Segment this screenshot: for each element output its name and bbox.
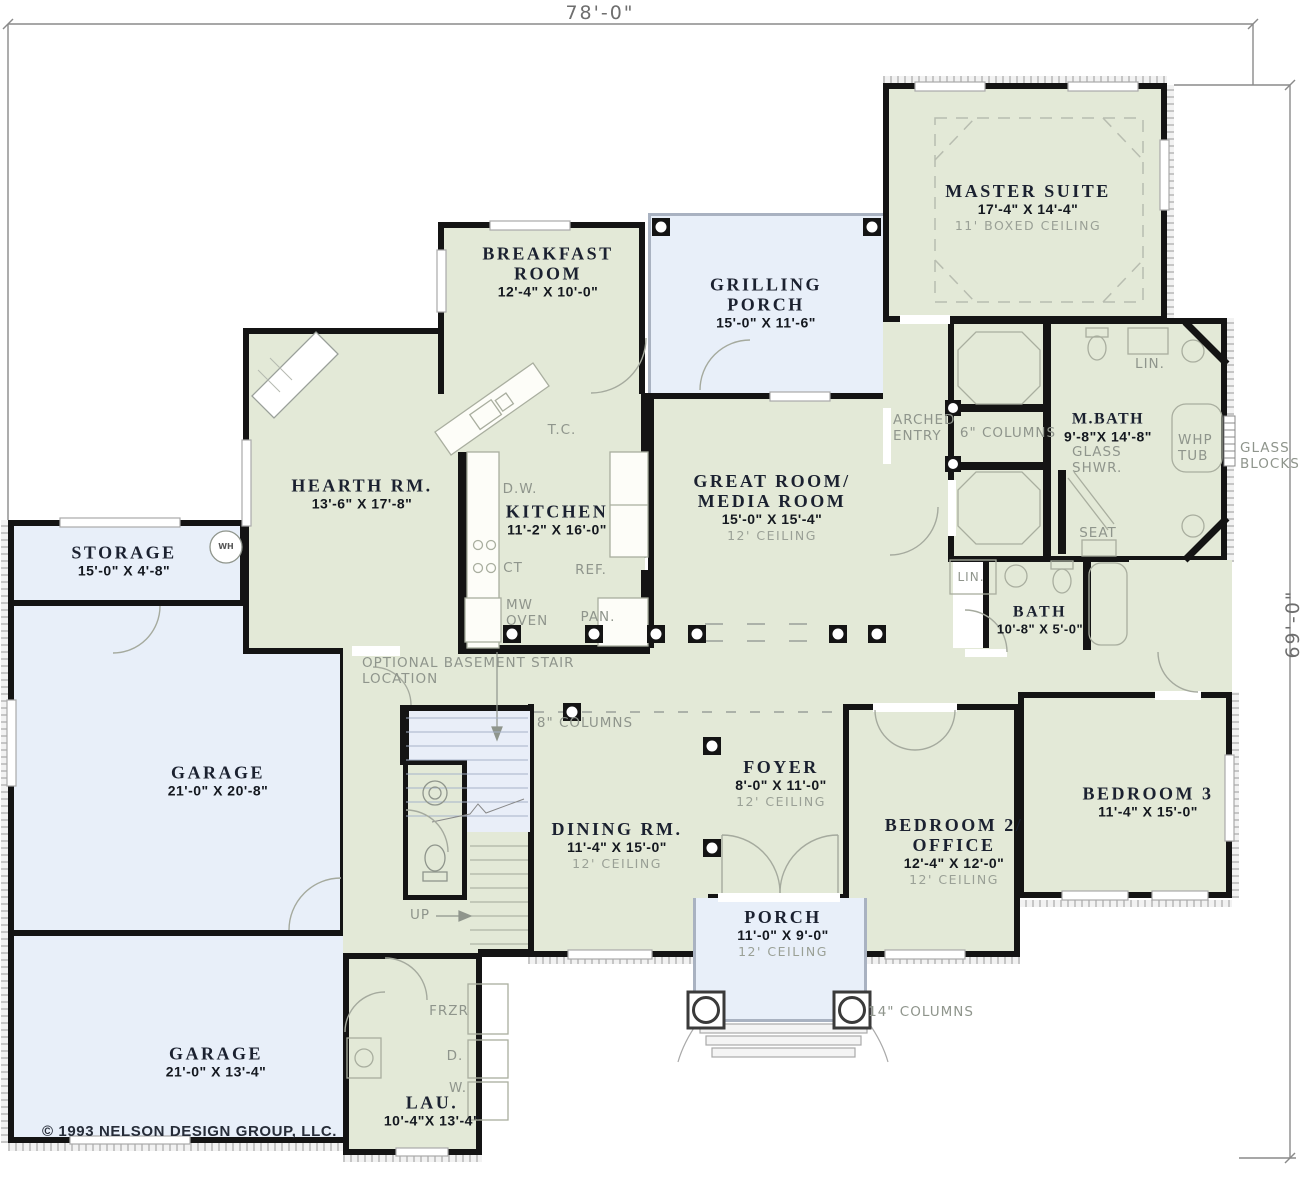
label-tall-cabinet: T.C. [548, 422, 577, 438]
label-8in-columns: 8" COLUMNS [537, 715, 633, 731]
label-up: UP [410, 907, 430, 923]
label-linen-mbath: LIN. [1135, 356, 1165, 372]
door-arcs [113, 338, 1198, 1032]
up-arrow [436, 911, 471, 921]
overall-width-dimension: 78'-0" [565, 2, 634, 24]
label-microwave-oven: MW OVEN [506, 597, 578, 629]
label-pantry: PAN. [581, 609, 616, 625]
label-14in-columns: 14" COLUMNS [868, 1004, 974, 1020]
porch-columns [688, 992, 870, 1028]
laundry-fixtures [347, 984, 508, 1120]
label-dishwasher: D.W. [503, 481, 538, 497]
label-refrigerator: REF. [575, 562, 607, 578]
fireplace [252, 332, 338, 418]
plan-linework [0, 0, 1314, 1177]
label-glass-shower: GLASS SHWR. [1072, 444, 1152, 476]
label-cooktop: CT [503, 560, 523, 576]
powder-fixtures [423, 781, 447, 881]
stairs-lower-treads [470, 846, 528, 944]
label-arched-entry: ARCHED ENTRY [893, 412, 971, 444]
label-water-heater: WH [218, 542, 234, 552]
label-washer: W. [449, 1080, 467, 1096]
label-whirlpool-tub: WHP TUB [1178, 432, 1228, 464]
copyright-text: © 1993 NELSON DESIGN GROUP, LLC. [42, 1123, 337, 1140]
dimension-lines [3, 19, 1296, 1163]
label-seat: SEAT [1079, 525, 1117, 541]
label-freezer: FRZR [429, 1003, 469, 1019]
label-6in-columns: 6" COLUMNS [960, 425, 1056, 441]
label-glass-blocks: GLASS BLOCKS [1240, 440, 1314, 472]
label-dryer: D. [447, 1048, 464, 1064]
floor-plan: 78'-0" 69'-0" MASTER SUITE 17'-4" X 14'-… [0, 0, 1314, 1177]
overall-height-dimension: 69'-0" [1282, 589, 1304, 658]
structural-columns [503, 218, 961, 857]
label-optional-basement-stair: OPTIONAL BASEMENT STAIR LOCATION [362, 655, 612, 687]
label-linen-bath: LIN. [957, 570, 984, 584]
stairs-upper-treads [406, 718, 528, 816]
master-ceiling-dashes [935, 118, 1143, 302]
